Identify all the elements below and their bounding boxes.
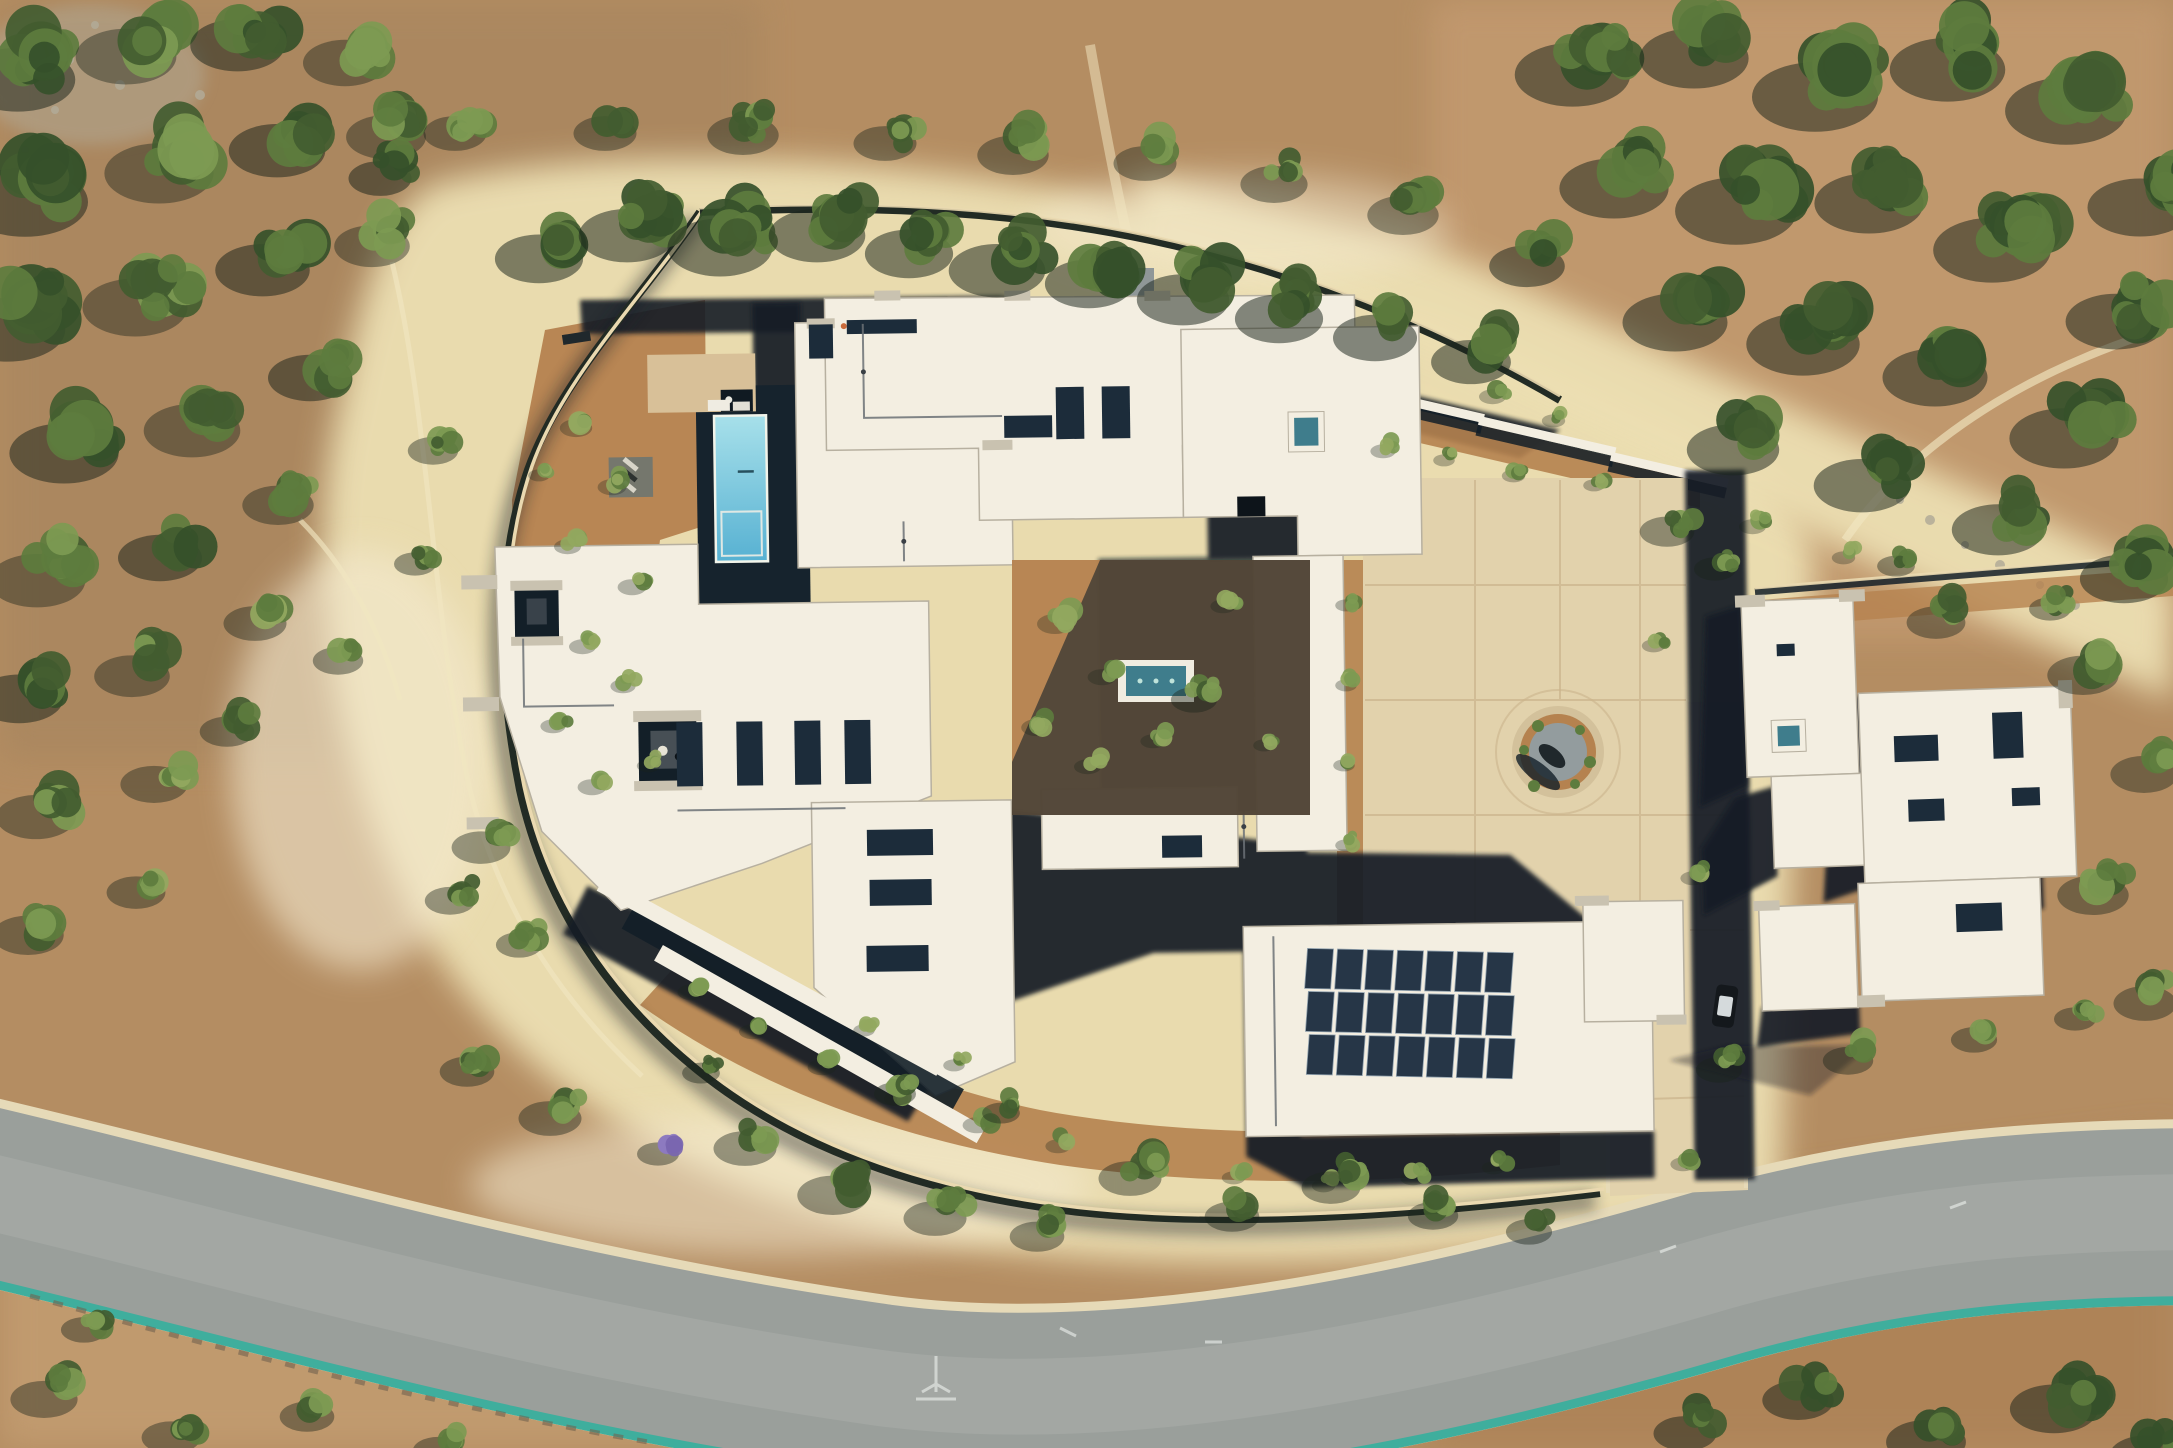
foliage-blob [179,1422,193,1436]
foliage-blob [2087,1005,2105,1023]
foliage-blob [1003,1099,1017,1113]
aerial-photo-stage: Aerial drone photograph of a Santa Fe pu… [0,0,2173,1448]
solar-panel [1305,948,1334,988]
foliage-blob [2140,976,2165,1001]
circular-planter: Circular landscaped planter with boulder [1496,690,1620,814]
foliage-blob [949,1186,967,1204]
foliage-blob [459,887,479,907]
foliage-blob [2046,585,2066,605]
foliage-blob [446,1422,466,1442]
foliage-blob [268,487,297,516]
foliage-blob [1140,134,1165,159]
foliage-blob [1851,1038,1876,1063]
foliage-blob [576,414,592,430]
foliage-blob [1660,272,1712,324]
foliage-blob [561,715,573,727]
foliage-blob [960,1051,972,1063]
foliage-blob [1278,163,1298,183]
foliage-blob [1601,23,1629,51]
foliage-blob [1953,51,1992,90]
foliage-blob [238,702,261,725]
foliage-blob [440,431,463,454]
foliage-blob [1689,864,1706,881]
solar-panel [1456,1038,1485,1078]
foliage-blob [32,651,71,690]
foliage-blob [618,203,644,229]
foliage-blob [591,105,623,137]
foliage-blob [998,226,1023,251]
foliage-blob [1938,583,1967,612]
foliage-blob [344,638,358,652]
foliage-blob [1390,188,1413,211]
foliage-blob [1410,188,1434,212]
foliage-blob [515,922,535,942]
foliage-blob [2085,638,2117,670]
foliage-blob [1052,605,1078,631]
foliage-blob [837,188,863,214]
foliage-blob [2125,553,2152,580]
central-courtyard: Central courtyard garden Tiled courtyard… [1012,560,1310,815]
foliage-blob [132,26,162,56]
foliage-blob [542,224,574,256]
solar-panel [1395,993,1424,1033]
solar-panel [1365,993,1394,1033]
solar-panel [1365,950,1394,990]
foliage-blob [379,150,409,180]
solar-panel [1486,1038,1515,1078]
foliage-blob [1803,281,1853,331]
foliage-blob [174,525,218,569]
foliage-blob [622,669,636,683]
foliage-blob [1814,1372,1837,1395]
foliage-blob [2096,858,2119,881]
foliage-blob [309,1393,330,1414]
solar-panel [1425,994,1454,1034]
foliage-blob [49,412,95,458]
guest-roof-south [1858,877,2044,1001]
solar-panel [1425,951,1454,991]
foliage-blob [1624,149,1659,184]
foliage-blob [570,1089,588,1107]
foliage-blob [1188,267,1235,314]
solar-panel [1455,995,1484,1035]
foliage-blob [738,117,758,137]
foliage-blob [158,254,186,282]
foliage-blob [366,198,401,233]
foliage-blob [650,757,661,768]
foliage-blob [1976,1021,1988,1033]
foliage-blob [1147,1153,1165,1171]
foliage-blob [1093,754,1108,769]
foliage-blob [1031,717,1046,732]
solar-panel [1335,949,1364,989]
foliage-blob [1380,443,1392,455]
foliage-blob [691,978,708,995]
foliage-blob [293,113,335,155]
foliage-blob [567,528,586,547]
foliage-blob [835,1165,864,1194]
foliage-blob [464,1052,482,1070]
foliage-blob [494,829,511,846]
foliage-blob [1659,637,1671,649]
foliage-blob [1264,736,1278,750]
foliage-blob [900,217,934,251]
foliage-blob [1447,447,1457,457]
foliage-blob [1268,292,1304,328]
foliage-blob [1817,43,1871,97]
foliage-blob [169,131,218,180]
foliage-blob [588,635,600,647]
foliage-blob [753,99,775,121]
foliage-blob [751,1126,779,1154]
foliage-blob [1873,157,1924,208]
foliage-blob [904,1074,920,1090]
foliage-blob [1011,110,1045,144]
foliage-blob [52,788,82,818]
foliage-blob [1341,753,1356,768]
foliage-blob [46,523,79,556]
foliage-blob [1413,1162,1427,1176]
solar-panel [1306,1034,1335,1074]
foliage-blob [1093,249,1139,295]
foliage-blob [339,44,371,76]
guest-skylight-teal [1771,719,1806,752]
solar-panel [1396,1036,1425,1076]
foliage-blob [1759,512,1771,524]
foliage-blob [119,260,158,299]
foliage-blob [1471,323,1512,364]
foliage-blob [1264,164,1280,180]
foliage-blob [703,1055,713,1065]
chimney-nw [809,324,833,358]
solar-panel [1395,950,1424,990]
foliage-blob [1106,661,1124,679]
foliage-blob [868,1017,879,1028]
solar-panel [1426,1037,1455,1077]
foliage-blob [1734,409,1773,448]
solar-panel [1336,1035,1365,1075]
foliage-blob [1730,175,1760,205]
foliage-blob [1344,672,1357,685]
foliage-blob [245,22,278,55]
foliage-blob [1931,329,1985,383]
foliage-blob [819,1050,838,1069]
skylight-framed [1156,829,1208,864]
foliage-blob [1495,384,1508,397]
foliage-blob [1554,410,1564,420]
foliage-blob [1207,677,1220,690]
foliage-blob [2004,200,2046,242]
foliage-blob [1681,1149,1699,1167]
foliage-blob [1423,1185,1448,1210]
solar-panel [1335,992,1364,1032]
foliage-blob [666,1140,683,1157]
foliage-blob [1222,1186,1246,1210]
foliage-blob [25,908,56,939]
foliage-blob [2046,1383,2072,1409]
foliage-blob [713,1057,724,1068]
foliage-blob [1038,1214,1059,1235]
foliage-blob [1678,516,1693,531]
foliage-blob [1928,1412,1954,1438]
foliage-blob [719,218,757,256]
foliage-blob [259,593,278,612]
foliage-blob [1530,239,1558,267]
foliage-blob [1939,1,1990,52]
foliage-blob [29,42,60,73]
guest-roof-garage [1759,904,1859,1011]
foliage-blob [265,236,304,275]
foliage-blob [1701,13,1751,63]
foliage-blob [319,348,347,376]
foliage-blob [168,750,198,780]
foliage-blob [1844,545,1855,556]
foliage-blob [1595,473,1605,483]
solar-panel [1366,1036,1395,1076]
foliage-blob [2063,59,2116,112]
foliage-blob [1524,1209,1546,1231]
solar-panel [1485,995,1514,1035]
foliage-blob [132,644,170,682]
foliage-blob [2071,1380,2097,1406]
foliage-blob [1221,591,1239,609]
foliage-blob [1339,1170,1353,1184]
foliage-blob [431,436,443,448]
foliage-blob [892,121,910,139]
foliage-blob [1343,834,1355,846]
aerial-photograph: Aerial drone photograph of a Santa Fe pu… [0,0,2173,1448]
guest-roof-east [1858,686,2077,883]
foliage-blob [1347,593,1358,604]
foliage-blob [1695,1403,1714,1422]
foliage-blob [751,1019,766,1034]
foliage-blob [373,92,408,127]
foliage-blob [1902,553,1916,567]
foliage-blob [1120,1162,1140,1182]
solar-panel [1485,952,1514,992]
foliage-blob [1235,1167,1249,1181]
foliage-blob [612,474,624,486]
foliage-blob [50,1374,68,1392]
roof-garage [1583,900,1685,1021]
foliage-blob [143,871,159,887]
foliage-blob [17,133,69,185]
foliage-blob [540,464,550,474]
foliage-blob [423,550,441,568]
foliage-blob [1723,1045,1740,1062]
solar-panel [1455,952,1484,992]
foliage-blob [467,108,493,134]
foliage-blob [597,774,613,790]
foliage-blob [2068,401,2116,449]
foliage-blob [1875,457,1899,481]
foliage-blob [374,228,406,260]
chimney-west-1 [510,580,563,646]
swimming-pool: Rectangular swimming pool [714,415,768,562]
foliage-blob [1372,292,1405,325]
foliage-blob [36,268,64,296]
foliage-blob [1514,464,1526,476]
skylight-teal-main [1288,411,1325,451]
foliage-blob [89,1312,105,1328]
foliage-blob [188,388,226,426]
foliage-blob [1058,1133,1075,1150]
solar-panel [1305,991,1334,1031]
foliage-blob [632,572,645,585]
foliage-blob [1493,1150,1507,1164]
foliage-blob [411,546,425,560]
foliage-blob [1157,722,1174,739]
foliage-blob [552,1101,575,1124]
foliage-blob [2002,492,2037,527]
foliage-blob [1725,559,1739,573]
